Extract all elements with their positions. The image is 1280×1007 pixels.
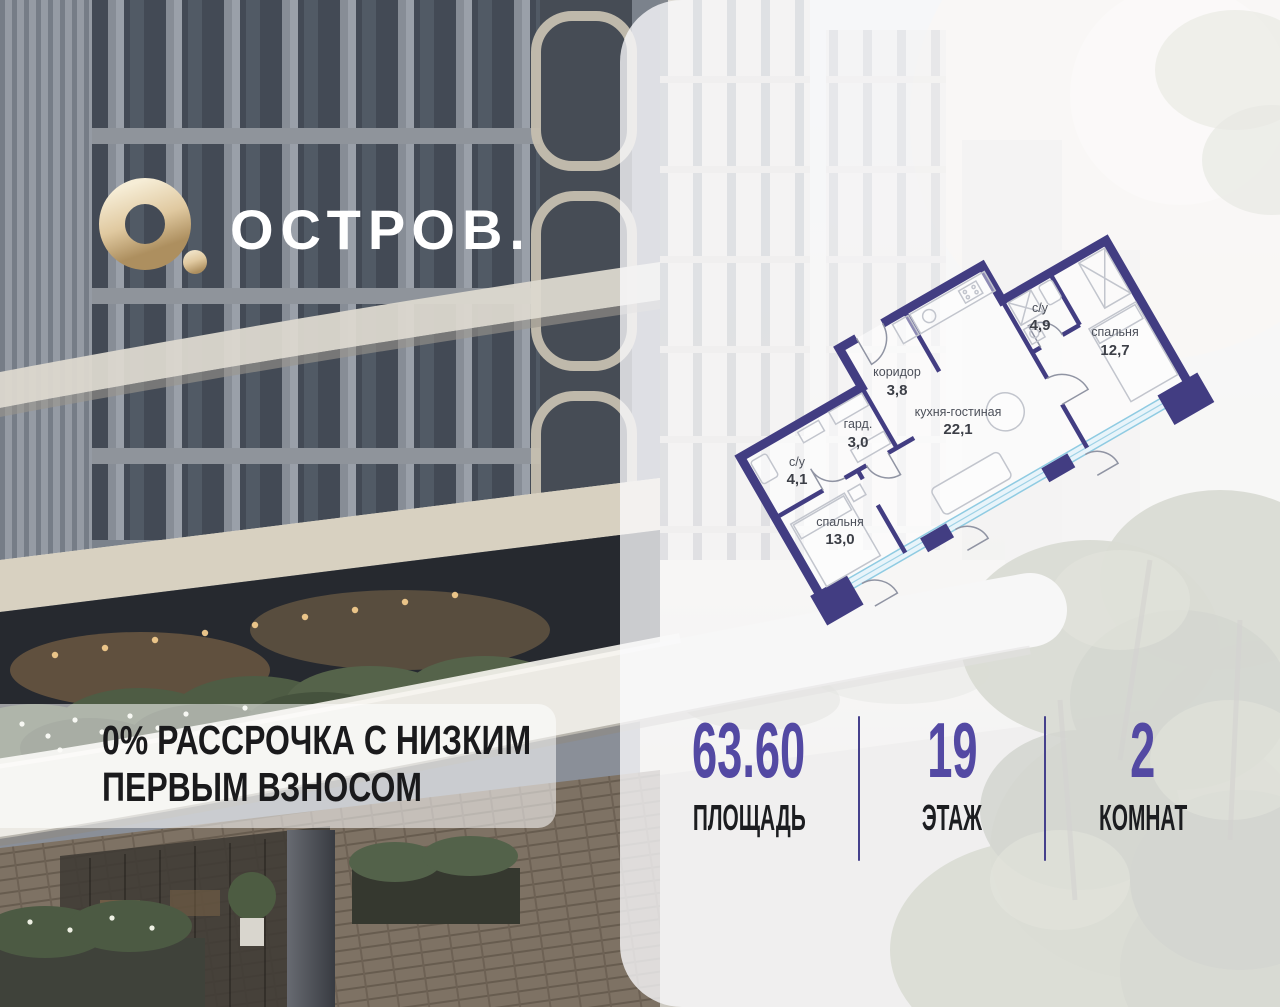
pillar — [287, 830, 335, 1007]
stat-rooms: 2 КОМНАТ — [1046, 710, 1240, 836]
ad-banner: с/у 4,9 спальня 12,7 коридор 3,8 гард. 3… — [0, 0, 1280, 1007]
stat-floor-label: ЭТАЖ — [922, 800, 982, 836]
room-name-label: гард. — [844, 417, 873, 431]
room-area-label: 3,8 — [887, 382, 908, 399]
room-area-label: 13,0 — [825, 531, 854, 548]
room-name-label: кухня-гостиная — [915, 405, 1002, 419]
room-area-label: 12,7 — [1100, 342, 1129, 359]
room-area-label: 3,0 — [848, 434, 869, 451]
promo-line-2: ПЕРВЫМ ВЗНОСОМ — [102, 764, 456, 811]
room-area-label: 4,1 — [787, 471, 808, 488]
potted-plant — [228, 872, 276, 920]
stat-rooms-label: КОМНАТ — [1099, 800, 1187, 836]
stat-area-value: 63.60 — [692, 710, 805, 790]
stat-rooms-value: 2 — [1130, 710, 1155, 790]
room-area-label: 22,1 — [943, 421, 972, 438]
stats-row: 63.60 ПЛОЩАДЬ 19 ЭТАЖ 2 КОМНАТ — [640, 710, 1240, 861]
stat-floor-value: 19 — [927, 710, 977, 790]
brand-wordmark: ОСТРОВ. — [230, 204, 532, 256]
stat-floor: 19 ЭТАЖ — [860, 710, 1044, 836]
stat-area-label: ПЛОЩАДЬ — [693, 800, 806, 836]
promo-banner: 0% РАССРОЧКА С НИЗКИМ ПЕРВЫМ ВЗНОСОМ — [0, 704, 556, 828]
room-area-label: 4,9 — [1030, 317, 1051, 334]
room-name-label: коридор — [873, 365, 921, 379]
floorplan: с/у 4,9 спальня 12,7 коридор 3,8 гард. 3… — [630, 170, 1250, 670]
logo-mark-icon — [98, 178, 238, 288]
room-name-label: с/у — [1032, 301, 1049, 315]
room-name-label: спальня — [1091, 325, 1138, 339]
promo-line-1: 0% РАССРОЧКА С НИЗКИМ — [102, 717, 456, 764]
stat-area: 63.60 ПЛОЩАДЬ — [640, 710, 858, 836]
room-name-label: спальня — [816, 515, 863, 529]
room-name-label: с/у — [789, 455, 806, 469]
